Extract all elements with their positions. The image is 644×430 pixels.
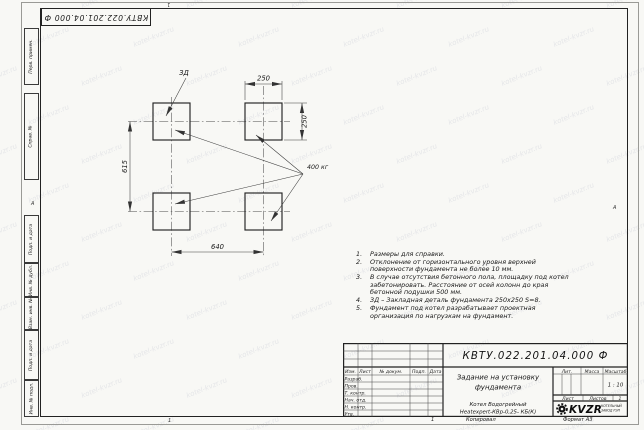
notes-list: 1.Размеры для справки. 2.Отклонение от г… <box>356 251 580 320</box>
lit-label: Лит. <box>561 369 573 375</box>
row-tkontr: Т. контр. <box>345 390 366 396</box>
note-item: 5.Фундамент под котел разрабатывает прое… <box>356 305 580 320</box>
note-item: 2.Отклонение от горизонтального уровня в… <box>356 259 580 274</box>
row-razrab: Разраб. <box>345 376 363 382</box>
note-item: 3.В случае отсутствия бетонного пола, пл… <box>356 274 580 297</box>
load-leader-4 <box>271 174 303 221</box>
dim-top-label: 250 <box>257 75 270 83</box>
load-leader-2 <box>256 135 303 174</box>
stamp-title-line2: фундамента <box>475 384 521 392</box>
product-line2: Heatexpert-КВр-0,25- КБ(К) <box>460 410 536 416</box>
sheets-value: 1 <box>619 396 622 402</box>
footer-copy-label: Копировал <box>466 417 496 423</box>
kvzr-logo: KVZR КОТЕЛЬНЫЙ ЗАВОД РЭП <box>557 403 622 416</box>
col-podp: Подп. <box>412 369 426 375</box>
product-line1: Котел Водогрейный <box>469 402 527 408</box>
embed-detail-label: ЗД <box>179 69 189 77</box>
logo-text: KVZR <box>569 404 602 416</box>
load-leader-3 <box>175 174 303 204</box>
embed-leader <box>166 78 186 116</box>
col-list: Лист <box>358 369 371 375</box>
stamp-doc-number: КВТУ.022.201.04.000 Ф <box>462 351 608 362</box>
logo-sub1: КОТЕЛЬНЫЙ <box>601 403 622 408</box>
col-data: Дата <box>429 369 442 375</box>
footer-format-label: Формат А3 <box>563 417 593 423</box>
row-nachotd: Нач. отд. <box>345 397 367 403</box>
sheet-label: Лист <box>561 396 574 402</box>
sheets-label: Листов <box>588 396 606 402</box>
stamp-title-line1: Задание на установку <box>457 374 540 382</box>
load-label: 400 кг <box>307 164 329 171</box>
row-nkontr: Н. контр. <box>345 404 367 410</box>
sheet: { "watermark": {"text": "kotel-kvzr.ru"}… <box>0 0 644 430</box>
title-block: Изм. Лист № докум. Подп. Дата Разраб. Пр… <box>343 343 628 417</box>
dim-bottom-label: 640 <box>211 243 224 251</box>
dim-left-label: 615 <box>121 160 129 173</box>
logo-sub2: ЗАВОД РЭП <box>601 409 621 413</box>
footer-sheet-num: 1 <box>431 417 434 423</box>
scale-label: Масштаб <box>605 369 627 375</box>
dim-right-label: 250 <box>301 115 309 128</box>
row-utv: Утв. <box>345 411 355 417</box>
col-docum: № докум. <box>379 369 403 375</box>
col-izm: Изм. <box>345 369 356 375</box>
load-leader-1 <box>175 130 303 174</box>
scale-value: 1 : 10 <box>608 383 624 389</box>
mass-label: Масса <box>585 369 600 375</box>
extension-lines <box>245 81 307 140</box>
row-prov: Пров. <box>345 383 358 389</box>
